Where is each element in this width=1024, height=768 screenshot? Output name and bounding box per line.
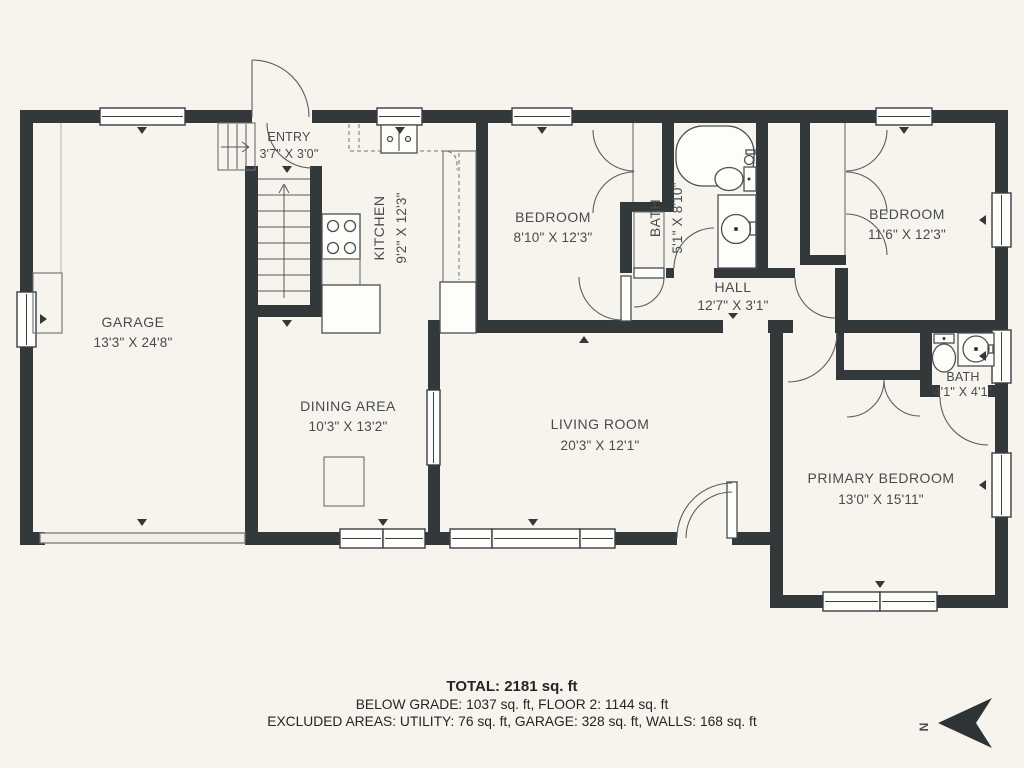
window <box>512 108 572 125</box>
vanity-sink <box>958 333 994 366</box>
room-dims-kitchen: 9'2" X 12'3" <box>394 192 409 263</box>
room-label-bedroom2: BEDROOM <box>869 206 945 222</box>
window <box>377 108 422 125</box>
floor-plan-page: GARAGE 13'3" X 24'8" ENTRY 3'7" X 3'0" K… <box>0 0 1024 768</box>
room-dims-garage: 13'3" X 24'8" <box>94 335 173 350</box>
window <box>992 453 1011 517</box>
room-label-bath1: BATH <box>647 199 663 237</box>
area-summary: TOTAL: 2181 sq. ft BELOW GRADE: 1037 sq.… <box>0 678 1024 730</box>
window <box>450 529 492 548</box>
dining-table <box>324 457 364 506</box>
bedroom1-door <box>579 276 631 321</box>
window <box>383 529 425 548</box>
room-dims-living: 20'3" X 12'1" <box>561 438 640 453</box>
garage-door <box>40 533 245 543</box>
vanity-sink <box>718 195 756 268</box>
linen-door <box>634 268 664 307</box>
primary-bedroom-door <box>788 333 837 382</box>
room-label-bath2: BATH <box>946 370 979 384</box>
room-dims-primary: 13'0" X 15'11" <box>838 492 924 507</box>
room-label-bedroom1: BEDROOM <box>515 209 591 225</box>
room-dims-dining: 10'3" X 13'2" <box>309 419 388 434</box>
room-label-living: LIVING ROOM <box>551 416 650 432</box>
pass-through <box>427 390 440 465</box>
stairs <box>258 179 310 298</box>
floor-plan: GARAGE 13'3" X 24'8" ENTRY 3'7" X 3'0" K… <box>0 0 1024 768</box>
toilet <box>715 167 756 191</box>
toilet <box>933 334 956 372</box>
bedroom2-door <box>795 278 835 318</box>
room-dims-hall: 12'7" X 3'1" <box>697 298 768 313</box>
stove <box>322 214 360 259</box>
bath2-door <box>940 397 988 445</box>
room-label-primary: PRIMARY BEDROOM <box>807 470 954 486</box>
room-dims-bath1: 5'1" X 8'10" <box>670 182 685 253</box>
window <box>100 108 185 125</box>
room-label-entry: ENTRY <box>267 130 311 144</box>
stairs-up-arrow <box>279 184 289 298</box>
window <box>880 592 937 611</box>
excluded-area-text: EXCLUDED AREAS: UTILITY: 76 sq. ft, GARA… <box>0 713 1024 730</box>
room-dims-bedroom1: 8'10" X 12'3" <box>514 230 593 245</box>
window <box>992 330 1011 383</box>
bath1-fixtures <box>676 126 756 268</box>
room-dims-entry: 3'7" X 3'0" <box>260 147 319 161</box>
window <box>580 529 615 548</box>
living-room-door <box>677 482 737 538</box>
total-area-text: TOTAL: 2181 sq. ft <box>0 678 1024 695</box>
room-label-garage: GARAGE <box>102 314 165 330</box>
primary-closet-doors <box>847 380 920 417</box>
kitchen-corner-cabinet <box>322 285 380 333</box>
window <box>492 529 580 548</box>
counter-below-stove <box>322 259 360 285</box>
window <box>340 529 383 548</box>
room-label-hall: HALL <box>714 279 751 295</box>
window <box>823 592 880 611</box>
garage-workbench <box>33 273 62 333</box>
room-label-dining: DINING AREA <box>300 398 396 414</box>
room-label-kitchen: KITCHEN <box>371 196 387 261</box>
garage-features <box>33 123 255 543</box>
window <box>992 193 1011 247</box>
room-labels: GARAGE 13'3" X 24'8" ENTRY 3'7" X 3'0" K… <box>94 130 993 507</box>
garage-entry-landing <box>218 123 255 170</box>
grade-area-text: BELOW GRADE: 1037 sq. ft, FLOOR 2: 1144 … <box>0 696 1024 713</box>
room-dims-bath2: 4'1" X 4'1" <box>934 385 993 399</box>
room-dims-bedroom2: 11'6" X 12'3" <box>868 227 946 242</box>
opening-markers <box>40 127 986 588</box>
bedroom1-closet-doors <box>593 130 634 213</box>
refrigerator <box>440 282 476 333</box>
window <box>876 108 932 125</box>
